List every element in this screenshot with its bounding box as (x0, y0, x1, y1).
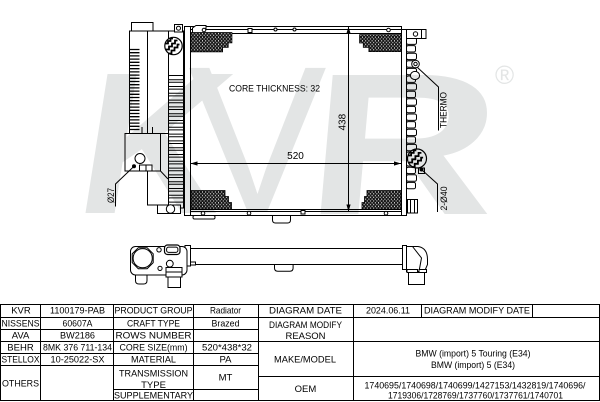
svg-text:R: R (299, 31, 508, 257)
svg-text:PRODUCT GROUP: PRODUCT GROUP (115, 306, 193, 317)
svg-text:2024.06.11: 2024.06.11 (366, 306, 410, 317)
svg-text:MT: MT (219, 373, 233, 384)
svg-text:®: ® (495, 60, 514, 90)
svg-text:8MK 376 711-134: 8MK 376 711-134 (43, 343, 112, 354)
svg-text:PA: PA (220, 355, 233, 366)
svg-text:STELLOX: STELLOX (2, 355, 41, 366)
svg-text:SUPPLEMENTARY: SUPPLEMENTARY (114, 390, 194, 401)
svg-text:Brazed: Brazed (212, 319, 240, 330)
svg-text:BW2186: BW2186 (60, 331, 95, 342)
svg-text:DIAGRAM MODIFY DATE: DIAGRAM MODIFY DATE (424, 306, 530, 317)
svg-text:60607A: 60607A (63, 319, 94, 330)
svg-text:BEHR: BEHR (7, 343, 34, 354)
svg-text:KVR: KVR (11, 306, 31, 317)
svg-text:CRAFT TYPE: CRAFT TYPE (127, 319, 180, 330)
svg-text:OEM: OEM (295, 384, 317, 395)
svg-text:BMW (import) 5 Touring (E34): BMW (import) 5 Touring (E34) (416, 349, 531, 360)
svg-text:520*438*32: 520*438*32 (202, 343, 252, 354)
svg-text:1719306/1728769/1737760/173776: 1719306/1728769/1737760/1737761/1740701 (388, 391, 563, 402)
svg-text:DIAGRAM MODIFY: DIAGRAM MODIFY (269, 320, 343, 331)
svg-text:REASON: REASON (286, 331, 326, 342)
svg-text:DIAGRAM DATE: DIAGRAM DATE (269, 306, 342, 317)
svg-text:ROWS NUMBER: ROWS NUMBER (116, 331, 192, 342)
svg-text:10-25022-SX: 10-25022-SX (51, 355, 106, 366)
svg-text:1100179-PAB: 1100179-PAB (50, 306, 105, 317)
svg-text:TRANSMISSION: TRANSMISSION (119, 369, 188, 380)
svg-text:MAKE/MODEL: MAKE/MODEL (274, 355, 336, 366)
svg-text:BMW (import) 5 (E34): BMW (import) 5 (E34) (431, 360, 515, 371)
svg-text:CORE SIZE(mm): CORE SIZE(mm) (120, 343, 188, 354)
svg-text:AVA: AVA (12, 331, 30, 342)
svg-text:OTHERS: OTHERS (2, 379, 39, 390)
svg-text:Radiator: Radiator (210, 306, 241, 317)
svg-text:MATERIAL: MATERIAL (131, 355, 176, 366)
svg-text:NISSENS: NISSENS (2, 319, 40, 330)
